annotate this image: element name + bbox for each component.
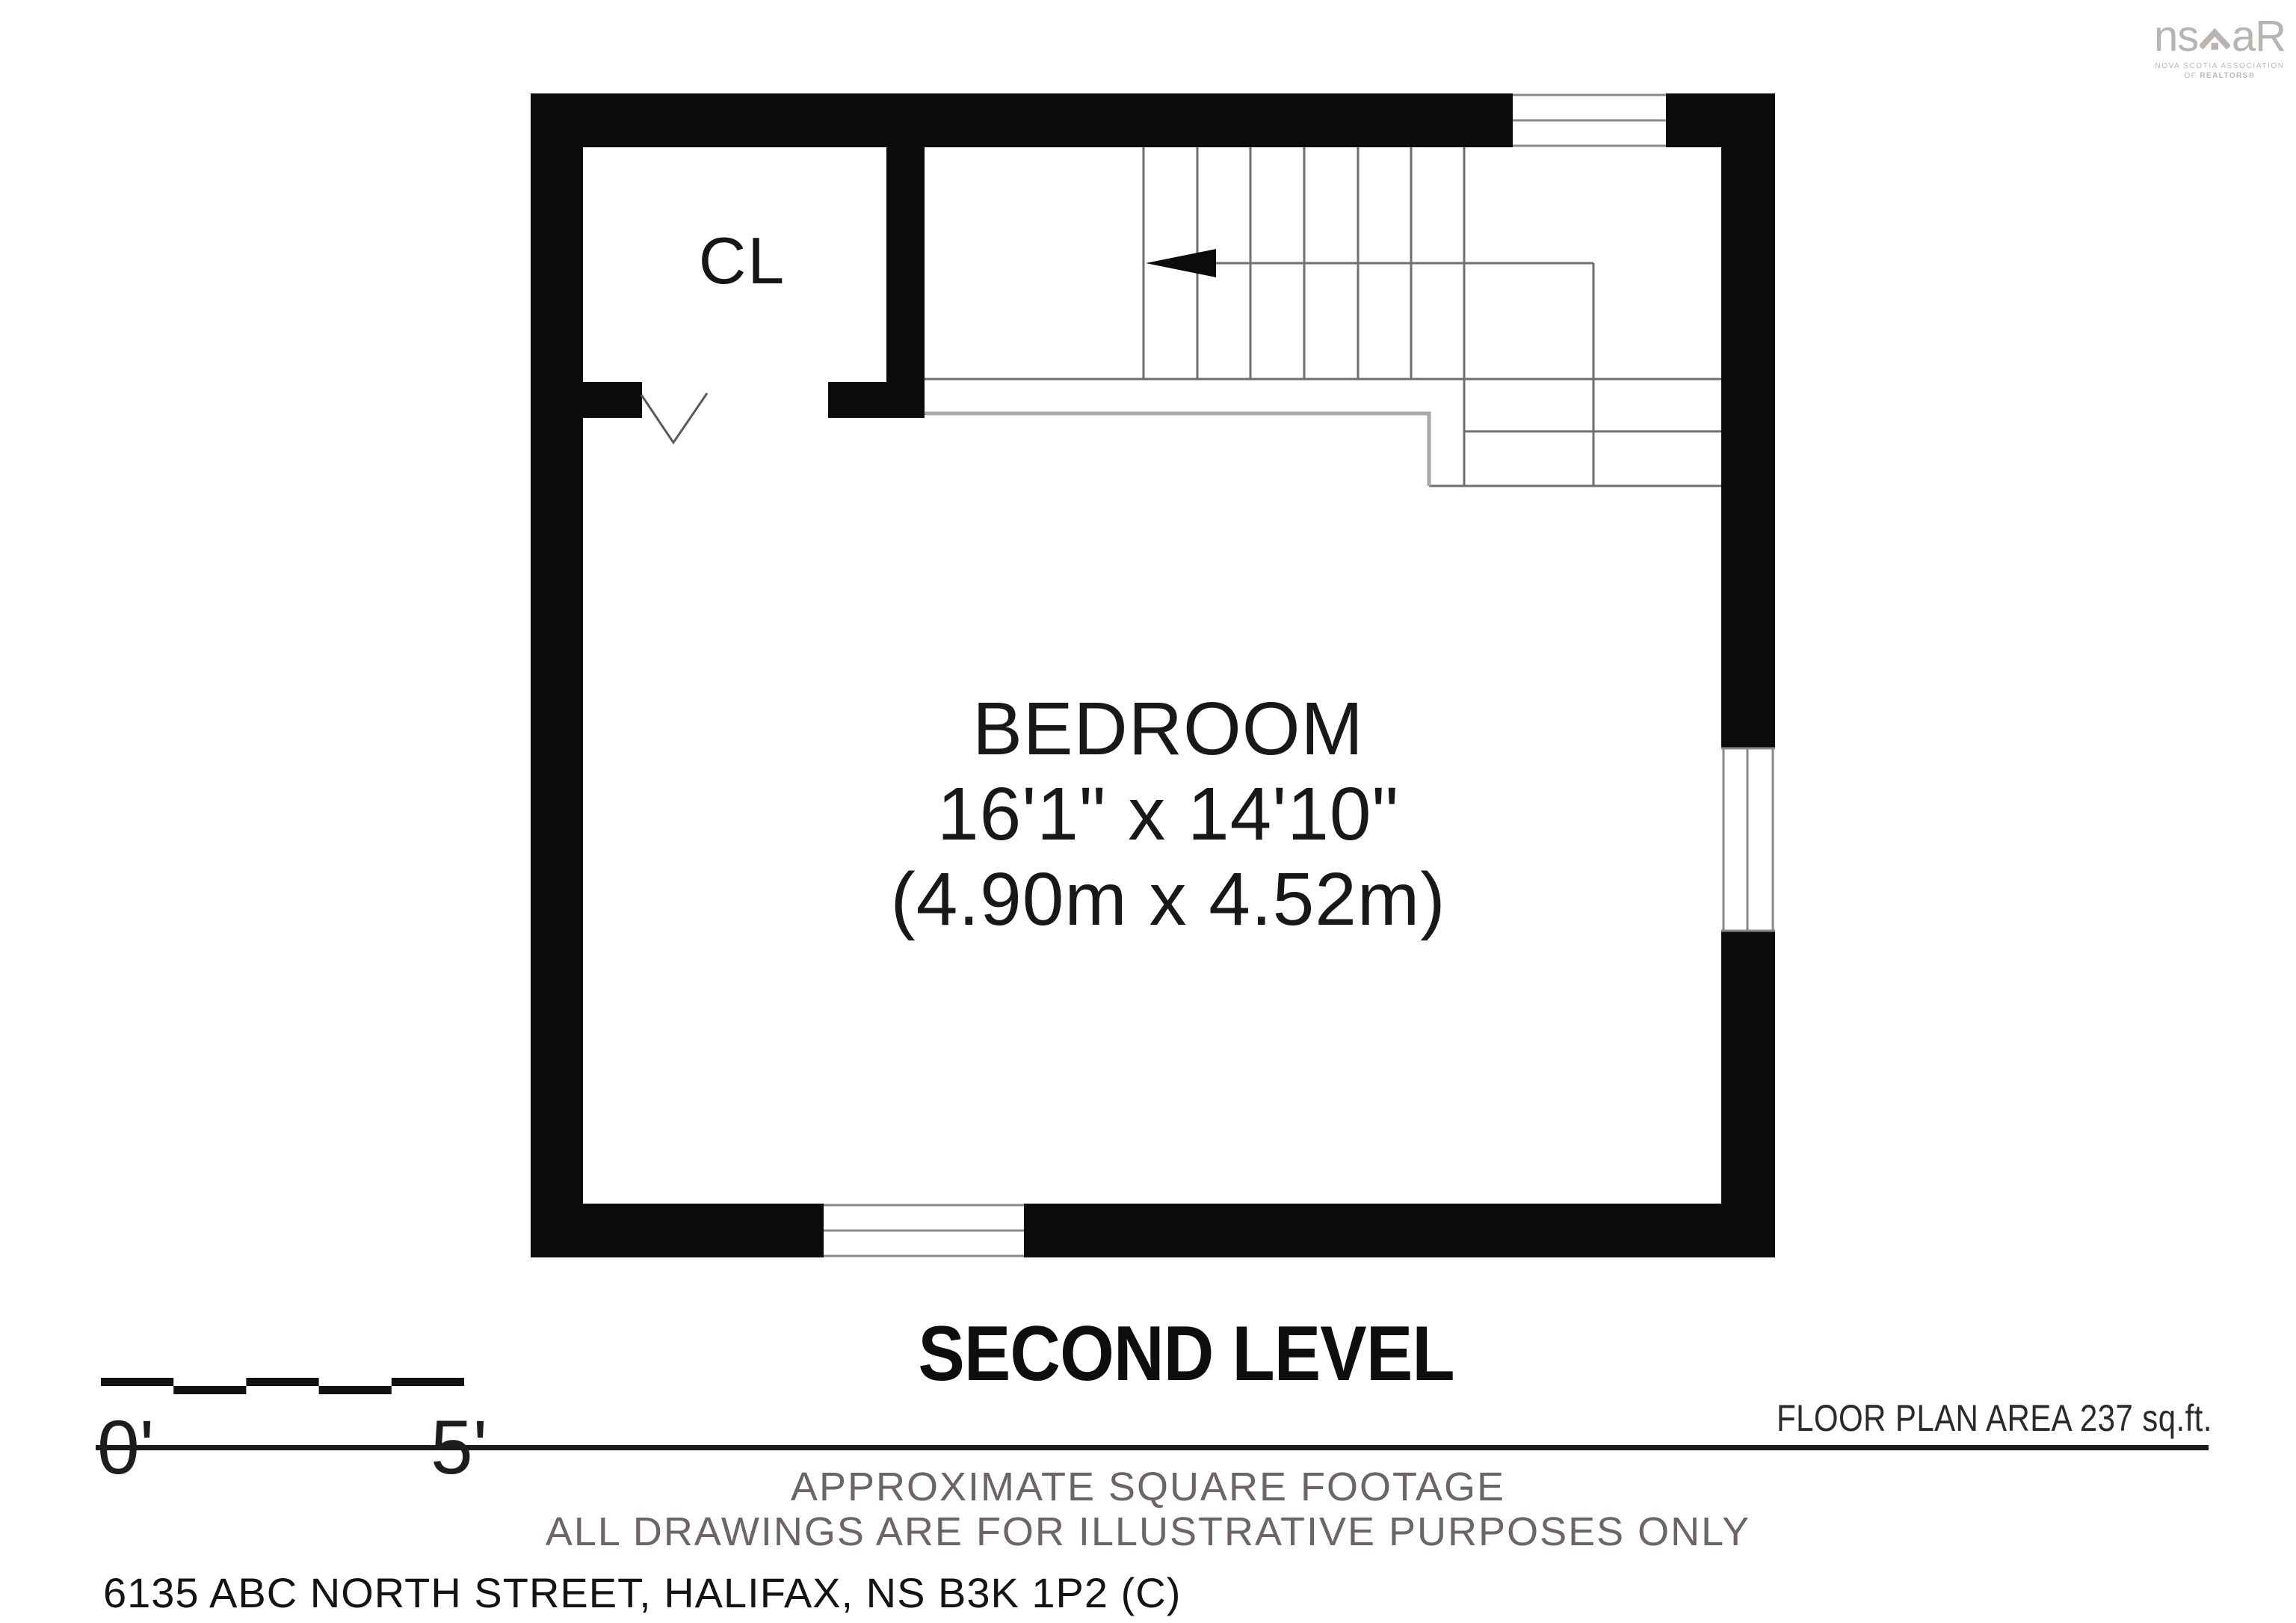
wall-bottom-left-segment	[531, 1204, 824, 1257]
floor-opening-step-line	[925, 413, 1429, 486]
window-top	[1513, 93, 1666, 147]
footer-disclaimer-line-1: APPROXIMATE SQUARE FOOTAGE	[0, 1464, 2296, 1510]
level-title: SECOND LEVEL	[889, 1310, 1484, 1399]
closet-label: CL	[699, 223, 786, 299]
nsar-logo: ns aR NOVA SCOTIA ASSOCIATION OF REALTOR…	[2154, 15, 2286, 80]
floor-plan-area-note: FLOOR PLAN AREA 237 sq.ft.	[1694, 1396, 2212, 1440]
closet-bottom-wall-left-stub	[583, 382, 642, 418]
wall-top-right-segment	[1666, 93, 1775, 147]
window-bottom	[824, 1204, 1024, 1257]
footer-disclaimer-line-2: ALL DRAWINGS ARE FOR ILLUSTRATIVE PURPOS…	[0, 1509, 2296, 1555]
logo-text-ns: ns	[2154, 15, 2198, 58]
stair-direction-arrow-icon	[1146, 249, 1216, 277]
house-roof-icon	[2200, 24, 2230, 58]
logo-subtitle-2: OF REALTORS®	[2154, 72, 2286, 80]
property-address: 6135 ABC NORTH STREET, HALIFAX, NS B3K 1…	[103, 1568, 1181, 1617]
wall-right-upper	[1721, 147, 1775, 748]
floor-plan-page: ns aR NOVA SCOTIA ASSOCIATION OF REALTOR…	[0, 0, 2296, 1623]
closet-right-wall	[886, 147, 925, 418]
staircase	[925, 147, 1721, 486]
logo-subtitle: NOVA SCOTIA ASSOCIATION	[2154, 62, 2286, 70]
closet-bottom-wall-right-stub	[828, 382, 886, 418]
scale-bar	[101, 1378, 464, 1394]
wall-left	[531, 93, 583, 1257]
nsar-logo-wordmark: ns aR	[2154, 15, 2286, 58]
window-right	[1721, 748, 1775, 931]
room-dimensions-metric: (4.90m x 4.52m)	[890, 857, 1445, 943]
logo-text-ar: aR	[2232, 15, 2286, 58]
footer-divider-rule	[96, 1445, 2209, 1450]
closet-door-swing-icon	[641, 393, 707, 443]
wall-top-left-segment	[531, 93, 1513, 147]
room-name-label: BEDROOM	[972, 686, 1364, 772]
wall-right-lower	[1721, 931, 1775, 1204]
room-dimensions-imperial: 16'1" x 14'10"	[937, 772, 1399, 857]
wall-bottom-right-segment	[1024, 1204, 1775, 1257]
